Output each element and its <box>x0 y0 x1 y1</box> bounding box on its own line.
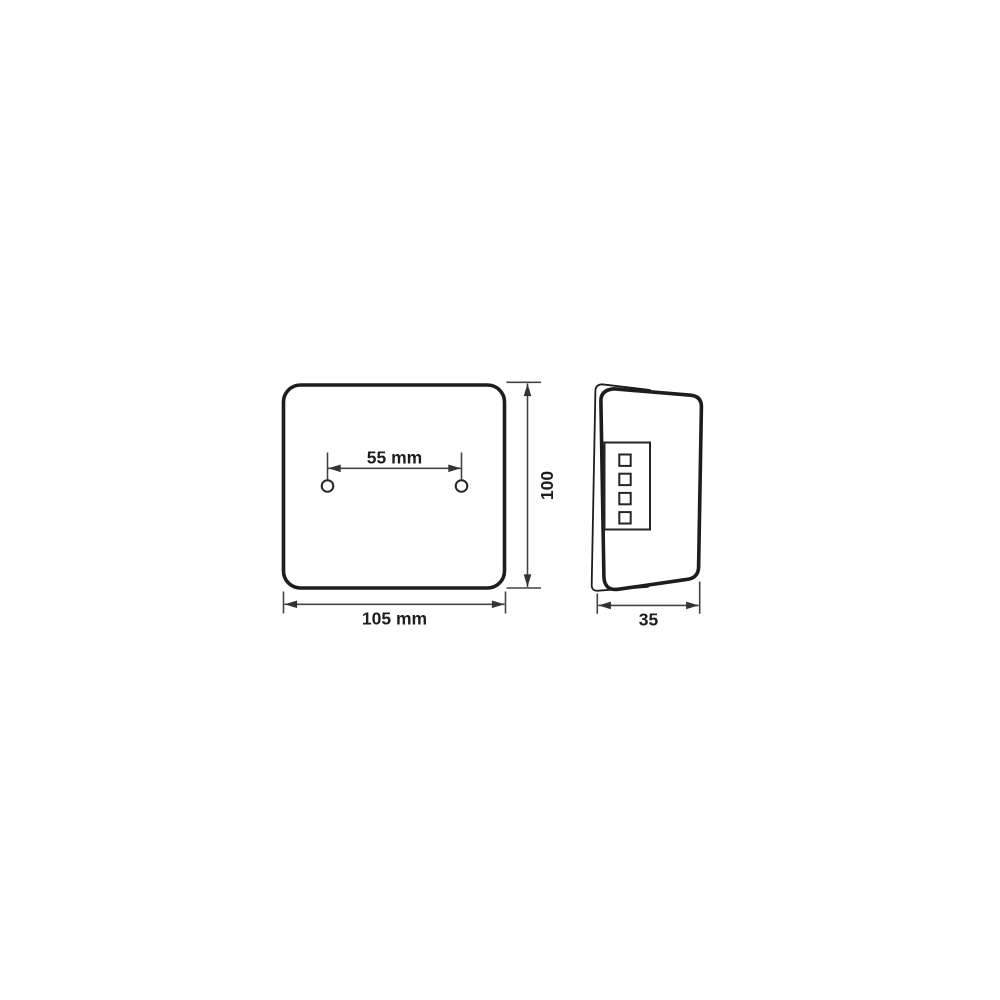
arrowhead-up-icon <box>524 384 532 397</box>
connector-pin <box>619 474 630 485</box>
width-label: 105 mm <box>362 609 427 629</box>
dimension-height: 100 <box>507 382 558 588</box>
front-panel-outline <box>284 385 505 588</box>
front-view: 55 mm 100 105 mm <box>284 382 558 628</box>
diagram-canvas: 55 mm 100 105 mm <box>0 0 1000 1000</box>
connector-pin <box>619 455 630 466</box>
connector-pin <box>619 493 630 504</box>
arrowhead-right-icon <box>686 602 699 610</box>
hole-spacing-label: 55 mm <box>367 448 422 468</box>
arrowhead-right-icon <box>492 601 505 609</box>
connector-pin <box>619 512 630 523</box>
side-view: 35 <box>592 384 702 629</box>
mounting-hole-right <box>456 480 468 492</box>
arrowhead-left-icon <box>285 601 298 609</box>
dimension-diagram: 55 mm 100 105 mm <box>0 0 1000 1000</box>
arrowhead-left-icon <box>598 602 611 610</box>
dimension-width: 105 mm <box>284 592 506 629</box>
mounting-hole-left <box>322 480 334 492</box>
height-label: 100 <box>537 471 557 500</box>
arrowhead-down-icon <box>524 574 532 587</box>
depth-label: 35 <box>639 610 659 630</box>
